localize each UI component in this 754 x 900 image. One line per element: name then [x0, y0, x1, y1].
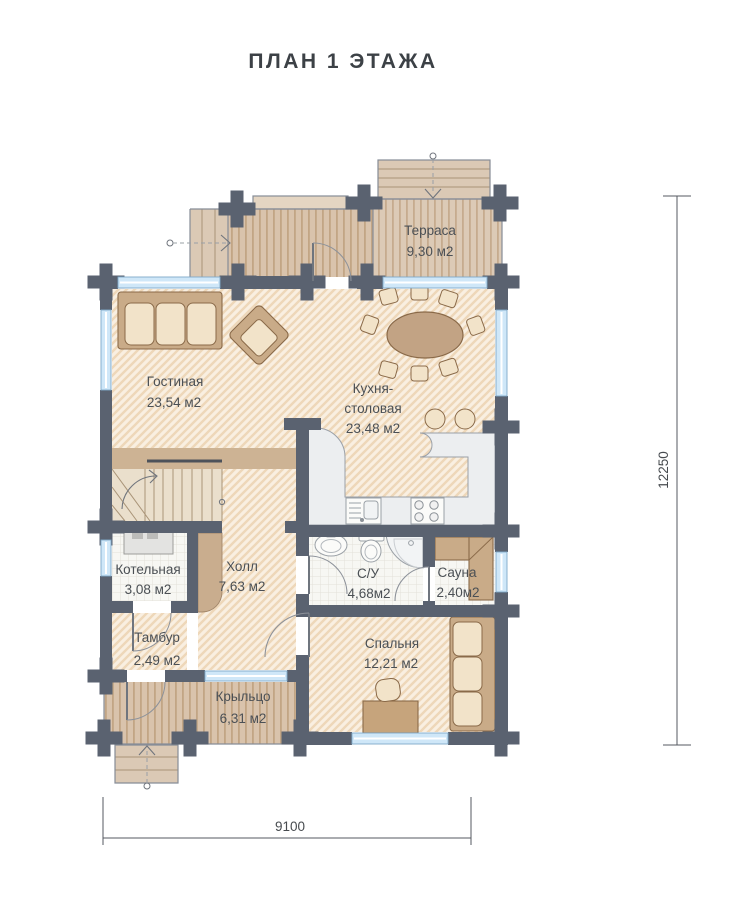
stair-run	[112, 469, 222, 521]
label-hall-name: Холл	[226, 559, 258, 574]
terrace-steps	[378, 160, 490, 199]
label-terrace-name: Терраса	[404, 223, 456, 238]
porch-steps	[115, 745, 178, 783]
window	[101, 310, 111, 390]
label-kitchen-area: 23,48 м2	[346, 421, 400, 436]
label-bedroom-name: Спальня	[365, 636, 419, 651]
hall-closet	[198, 533, 222, 612]
window	[496, 552, 507, 592]
label-boiler-area: 3,08 м2	[125, 582, 172, 597]
label-bedroom-area: 12,21 м2	[364, 656, 418, 671]
deck-upper-band	[253, 196, 348, 209]
window	[496, 310, 507, 396]
dimension-bottom: 9100	[103, 797, 471, 845]
label-living-area: 23,54 м2	[147, 395, 201, 410]
desk	[363, 701, 418, 733]
boiler-unit	[124, 530, 173, 554]
window	[101, 540, 111, 576]
label-wc-name: С/У	[357, 566, 380, 581]
label-sauna-name: Сауна	[438, 565, 477, 580]
label-tambour-name: Тамбур	[134, 630, 180, 645]
floor-plan-page: ПЛАН 1 ЭТАЖА	[0, 0, 754, 900]
sofa	[118, 292, 222, 349]
dim-height-label: 12250	[656, 451, 671, 489]
label-sauna-area: 2,40м2	[436, 585, 479, 600]
stove	[411, 498, 444, 524]
label-porch-name: Крыльцо	[215, 689, 270, 704]
label-porch-area: 6,31 м2	[220, 711, 267, 726]
window	[118, 277, 220, 288]
label-tambour-area: 2,49 м2	[134, 653, 181, 668]
passage-floor	[222, 469, 296, 533]
label-hall-area: 7,63 м2	[219, 579, 266, 594]
kitchen-sink	[346, 498, 381, 524]
terrace-deck	[373, 199, 502, 277]
window	[205, 671, 287, 681]
label-kitchen-line2: столовая	[344, 401, 401, 416]
dimension-right: 12250	[656, 196, 691, 745]
stair-landing	[112, 448, 296, 469]
label-wc-area: 4,68м2	[347, 586, 390, 601]
window	[352, 733, 448, 744]
label-living-name: Гостиная	[147, 374, 204, 389]
bar-stool	[455, 409, 475, 429]
bar-stool	[425, 409, 445, 429]
desk-chair	[375, 677, 402, 702]
dim-width-label: 9100	[275, 819, 305, 834]
label-kitchen-line1: Кухня-	[353, 381, 394, 396]
label-boiler-name: Котельная	[115, 562, 180, 577]
bed-sofa	[450, 617, 495, 731]
floor-plan-drawing: Терраса 9,30 м2 Гостиная 23,54 м2 Кухня-…	[0, 0, 754, 900]
label-terrace-area: 9,30 м2	[407, 244, 454, 259]
window	[383, 277, 487, 288]
